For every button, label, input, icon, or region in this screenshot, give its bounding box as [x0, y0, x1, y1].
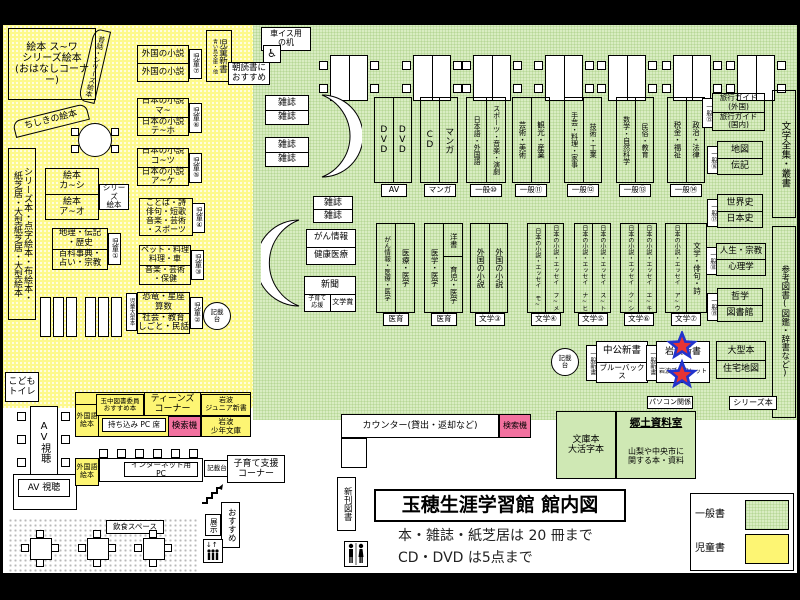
shelf-bar	[40, 297, 51, 337]
folklore-education-label: 民俗・教育	[635, 98, 654, 182]
shelf-japanese-fiction-6: 日本の小説・エッセイ ク~シ 日本の小説・エッセイ エ~キ	[620, 223, 657, 313]
school-recommended-shelf: 玉中図書委員 おすすめ本	[96, 394, 144, 416]
medical-2-right: 洋書 育児・医学	[443, 224, 462, 312]
foreign-novel-label: 外国の小説	[138, 63, 188, 81]
chair	[21, 544, 29, 552]
psychology-label: 心理学	[717, 259, 765, 275]
chair	[61, 458, 70, 467]
chair	[662, 84, 671, 93]
chair	[513, 61, 522, 70]
ehon-ka-shi: 絵本 カ~シ	[46, 169, 98, 194]
chair	[662, 61, 671, 70]
chair	[71, 145, 79, 153]
society-label: 社会・教育 しごと・民話	[138, 313, 189, 334]
shelf-bar	[111, 297, 122, 337]
shelf-bar	[53, 297, 64, 337]
chair	[93, 559, 101, 567]
chair	[585, 84, 594, 93]
novel-a-ke-label: 日本の小説 ア~ケ	[138, 167, 188, 187]
biography-label: 伝記	[718, 158, 762, 175]
tag-ippan-14: 一般⑭	[670, 184, 702, 197]
local-materials-title: 郷土資料室	[617, 412, 695, 436]
novel-ma-label: 日本の小説 マ~	[138, 98, 188, 117]
chair	[402, 84, 411, 93]
tag-ippan-15: 一般⑮	[702, 98, 713, 128]
japanese-novel-shelf-ko: 日本の小説 コ~ツ 日本の小説 ア~ケ	[137, 148, 189, 186]
counter: カウンター(貸出・返却など)	[341, 414, 499, 438]
library-science-label: 図書館	[718, 305, 762, 322]
foreign-novel-label: 外国の小説	[138, 46, 188, 63]
travel-guide-shelf: 旅行ガイド (外国) 旅行ガイド (国内)	[712, 93, 765, 131]
encyclopedia-label: 百科事典・ 占い・宗教	[53, 249, 107, 270]
tag-bungaku-6: 文学⑥	[624, 313, 654, 326]
curved-shelf	[320, 93, 362, 179]
jp-essay-e-ki-label: 日本の小説・エッセイ エ~キ	[638, 224, 656, 312]
tag-bungaku-3: 文学③	[475, 313, 505, 326]
cd-label: CD	[421, 98, 439, 182]
newspaper-label: 新聞	[305, 277, 355, 294]
large-book-shelf: 大型本 住宅地図	[716, 341, 766, 379]
reference-books-strip: 参考図書(図鑑・辞書など)	[772, 226, 796, 418]
chair	[597, 84, 606, 93]
chair	[111, 128, 119, 136]
tag-ippan-17: 一般⑰	[707, 199, 718, 227]
chair	[777, 61, 786, 70]
literature-haiku-label: 文学・俳句・詩	[686, 224, 707, 312]
tag-ippan-18: 一般⑱	[706, 247, 717, 275]
childcare-medical-label: 育児・医学	[444, 257, 462, 312]
tag-jidou-1: 児童①	[108, 233, 121, 265]
tag-bungaku-7: 文学⑦	[671, 313, 701, 326]
residential-map-label: 住宅地図	[717, 360, 765, 379]
tag-jidou-7: 児童⑦	[189, 49, 202, 79]
tag-pasokon: パソコン関係	[647, 396, 693, 409]
shelf-bar	[98, 297, 109, 337]
jp-essay-a-u-label: 日本の小説・エッセイ ア~ウ	[666, 224, 686, 312]
chair	[93, 530, 101, 538]
magazine-label: 雑誌	[314, 209, 352, 222]
shelf-dvd: DVD DVD	[374, 97, 412, 183]
foreign-novel-shelf: 外国の小説 外国の小説	[137, 45, 189, 82]
chair	[153, 449, 162, 458]
new-books-shelf: 新刊図書	[337, 477, 356, 531]
chair	[713, 84, 722, 93]
shelf-medical-2: 医学・医学 洋書 育児・医学	[424, 223, 463, 313]
magazine-label: 雑誌	[266, 110, 308, 125]
travel-guide-domestic-label: 旅行ガイド (国内)	[713, 112, 764, 131]
chair	[453, 61, 462, 70]
tag-jidou-3: 児童③	[191, 250, 204, 280]
foreign-novel-label: 外国の小説	[489, 224, 508, 312]
chair	[726, 84, 735, 93]
reading-table	[462, 55, 522, 101]
chair	[61, 435, 70, 444]
chair	[319, 61, 328, 70]
philosophy-label: 哲学	[718, 289, 762, 305]
chair	[71, 128, 79, 136]
foreign-language-picture-books: 外国語 絵本	[75, 458, 99, 486]
chair	[453, 84, 462, 93]
jp-essay-na-hi-label: 日本の小説・エッセイ ナ~ヒ	[575, 224, 592, 312]
chair	[61, 412, 70, 421]
table	[608, 55, 646, 101]
toilet-icon	[344, 541, 368, 567]
literature-collection-strip: 文学全集・叢書	[772, 90, 796, 218]
chair	[111, 145, 119, 153]
internet-pc-label: インターネット用 PC	[124, 462, 198, 477]
map-label: 地図	[718, 142, 762, 158]
legend-general-label: 一般書	[695, 509, 725, 520]
chair	[713, 61, 722, 70]
medical-label: 医療・医学	[395, 224, 414, 312]
manga-label: マンガ	[439, 98, 458, 182]
search-terminal: 検索機	[168, 416, 201, 437]
dining-table	[30, 538, 52, 560]
chair	[149, 530, 157, 538]
local-materials-desc: 山梨や中央市に 関する本・資料	[617, 436, 695, 478]
chair	[585, 61, 594, 70]
jp-essay-ku-shi-label: 日本の小説・エッセイ ク~シ	[621, 224, 638, 312]
chair	[164, 544, 172, 552]
philosophy-shelf: 哲学 図書館	[717, 288, 763, 322]
legend-general-swatch	[745, 500, 789, 530]
morning-reading-shelf: 朝読書に おすすめ	[228, 62, 270, 85]
health-care-label: 健康医療	[307, 247, 355, 265]
series-braille-kamishibai-shelf: シリーズ本・点字絵本・布絵本・ 紙芝居・大型紙芝居・大型絵本	[8, 148, 36, 320]
elevator-icon: ↓↑	[203, 539, 223, 563]
newspaper-sub: 子育て 応援 文学賞	[305, 294, 355, 312]
tag-manga: マンガ	[424, 184, 456, 197]
jp-essay-mo-label: 日本の小説・エッセイ モ~	[528, 224, 545, 312]
chair	[108, 544, 116, 552]
tag-jidou-4: 児童④	[192, 203, 205, 233]
world-history-label: 世界史	[718, 195, 762, 211]
shelf-bar	[85, 297, 96, 337]
kotoba-shelf: ことば・詩 俳句・短歌 音楽・芸術 ・スポーツ	[139, 198, 193, 236]
pet-label: ペット・料理 料理・車	[140, 246, 190, 265]
legend-children-label: 児童書	[695, 543, 725, 554]
legend-children-swatch	[745, 534, 789, 564]
recommended-display-shelf: おすすめ	[221, 502, 240, 548]
legend: 一般書 児童書	[690, 493, 794, 571]
tag-bungaku-5: 文学⑤	[578, 313, 608, 326]
art-label: 芸術・美術	[513, 98, 531, 182]
table	[673, 55, 711, 101]
chair	[36, 530, 44, 538]
tag-ippan-13: 一般⑬	[619, 184, 651, 197]
technology-label: 技術・工業	[583, 98, 602, 182]
tag-ippan-11: 一般⑪	[515, 184, 547, 197]
reading-table	[597, 55, 657, 101]
writing-desk-circle: 記載 台	[551, 348, 579, 376]
japanese-novel-shelf-ma: 日本の小説 マ~ 日本の小説 テ~ホ	[137, 98, 189, 136]
table	[413, 55, 451, 101]
floor-map-title: 玉穂生涯学習館 館内図	[374, 489, 626, 522]
legend-row-children: 児童書	[695, 534, 789, 564]
chuko-shinsho-label: 中公新書	[597, 342, 647, 362]
kosodate-ouen-label: 子育て 応援	[305, 295, 331, 312]
chair	[189, 449, 198, 458]
japanese-foreign-language-label: 日本語・外国語	[467, 98, 486, 182]
tourism-label: 観光・産業	[531, 98, 550, 182]
wheelchair-icon: ♿	[263, 45, 281, 63]
tax-welfare-label: 税金・福祉	[668, 98, 686, 182]
magazine-label: 雑誌	[314, 197, 352, 209]
shelf-cd-manga: CD マンガ	[420, 97, 458, 183]
tag-series-hon: シリーズ本	[729, 396, 777, 410]
novel-ko-tsu-label: 日本の小説 コ~ツ	[138, 148, 188, 167]
shelf-japanese-fiction-4: 日本の小説・エッセイ モ~ 日本の小説・エッセイ フ~メ	[527, 223, 564, 313]
kids-toilet: こども トイレ	[5, 372, 39, 402]
dinosaur-society-shelf: 恐竜・星座 算数 社会・教育 しごと・民話	[137, 292, 190, 334]
travel-guide-foreign-label: 旅行ガイド (外国)	[713, 94, 764, 112]
table	[473, 55, 511, 101]
chair	[135, 449, 144, 458]
ehon-a-o: 絵本 ア~オ	[46, 194, 98, 220]
math-science-label: 数学・自然科学	[617, 98, 635, 182]
tag-ippan-16: 一般⑯	[707, 146, 718, 174]
chair	[648, 61, 657, 70]
chair	[319, 84, 328, 93]
western-books-label: 洋書	[444, 224, 462, 257]
writing-desk-circle: 記載 台	[203, 302, 231, 330]
tag-ippan-shinsho: 一般新書	[646, 345, 657, 381]
series-ehon-tag: シリーズ 絵本	[99, 184, 129, 210]
music-health-label: 音楽・芸術 ・保健	[140, 265, 190, 285]
geography-label: 地理・伝記 ・歴史	[53, 229, 107, 249]
tag-ippan-shinsho: 一般新書	[586, 345, 597, 381]
chair	[534, 84, 543, 93]
shelf-bar	[66, 297, 77, 337]
chair	[370, 61, 379, 70]
search-terminal: 検索機	[499, 414, 531, 438]
chair	[99, 449, 108, 458]
table	[545, 55, 583, 101]
chair	[534, 61, 543, 70]
iwanami-junior-shinsho: 岩波 ジュニア新書	[201, 394, 251, 416]
tag-ippan-12: 一般⑫	[567, 184, 599, 197]
tag-iiku: 医育	[383, 313, 409, 326]
chair	[78, 544, 86, 552]
tag-bungaku-4: 文学④	[531, 313, 561, 326]
chair	[17, 412, 26, 421]
map-canvas: 絵本 ス~ワ シリーズ絵本 (おはなしコーナー) 昔話・シリーズ絵本 ちしきの絵…	[3, 25, 797, 573]
shelf-foreign-fiction: 外国の小説 外国の小説	[470, 223, 508, 313]
bluebacks-label: ブルーバックス	[597, 362, 647, 383]
magazine-shelf: 雑誌 雑誌	[313, 196, 353, 223]
magazine-label: 雑誌	[266, 138, 308, 152]
novel-te-ho-label: 日本の小説 テ~ホ	[138, 117, 188, 137]
sports-music-drama-label: スポーツ・音楽・演劇	[486, 98, 506, 182]
shelf-medical-1: がん情報・医療・医学 医療・医学	[376, 223, 415, 313]
geography-encyclopedia-shelf: 地理・伝記 ・歴史 百科事典・ 占い・宗教	[52, 228, 108, 270]
bungakusho-label: 文学賞	[331, 299, 356, 307]
shelf-art-tourism: 芸術・美術 観光・産業	[512, 97, 550, 183]
chair	[36, 559, 44, 567]
shelf-japanese-fiction-5: 日本の小説・エッセイ ナ~ヒ 日本の小説・エッセイ ス~ト	[574, 223, 611, 313]
chair	[51, 544, 59, 552]
display-label: 展示	[205, 514, 221, 536]
counter-leg	[341, 438, 367, 468]
jp-essay-su-to-label: 日本の小説・エッセイ ス~ト	[592, 224, 610, 312]
chuko-shinsho-shelf: 中公新書 ブルーバックス	[596, 341, 648, 383]
local-materials-room: 郷土資料室 山梨や中央市に 関する本・資料	[616, 411, 696, 479]
tag-av: AV	[381, 184, 407, 197]
chair	[726, 61, 735, 70]
magazine-shelf: 雑誌 雑誌	[265, 95, 309, 125]
curved-shelf	[261, 218, 301, 308]
reading-table	[534, 55, 594, 101]
handicraft-label: 手芸・料理・家事	[565, 98, 583, 182]
map-biography-shelf: 地図 伝記	[717, 141, 763, 175]
cd-dvd-limit-note: CD・DVD は5点まで	[398, 547, 533, 567]
tag-ippan-19: 一般⑲	[707, 293, 718, 321]
av-viewing-booth-label: AV 視聴	[18, 479, 70, 497]
foreign-novel-label: 外国の小説	[471, 224, 489, 312]
dining-table	[87, 538, 109, 560]
loan-limit-note: 本・雑誌・紙芝居は 20 冊まで	[398, 525, 593, 545]
life-religion-label: 人生・宗教	[717, 244, 765, 259]
childcare-support-corner: 子育て支援 コーナー	[227, 455, 285, 483]
cancer-medical-label: がん情報・医療・医学	[377, 224, 395, 312]
dining-table	[143, 538, 165, 560]
chair	[134, 544, 142, 552]
chair	[462, 61, 471, 70]
chair	[171, 449, 180, 458]
teens-corner-label: ティーンズ コーナー	[144, 392, 201, 416]
magazine-label: 雑誌	[266, 152, 308, 167]
chair	[462, 84, 471, 93]
round-table	[78, 123, 112, 157]
large-book-label: 大型本	[717, 342, 765, 360]
chair	[648, 84, 657, 93]
tag-jidou-ogata: 児童大型本	[126, 293, 137, 331]
svg-text:↓↑: ↓↑	[206, 541, 218, 549]
tag-ippan-10: 一般⑩	[470, 184, 502, 197]
star-sticker	[664, 331, 700, 389]
magazine-shelf: 雑誌 雑誌	[265, 137, 309, 167]
tag-jidou-6: 児童⑥	[189, 103, 202, 133]
newspaper-shelf: 新聞 子育て 応援 文学賞	[304, 276, 356, 312]
chair	[117, 449, 126, 458]
dinosaur-label: 恐竜・星座 算数	[138, 293, 189, 313]
chair	[513, 84, 522, 93]
jp-essay-fu-me-label: 日本の小説・エッセイ フ~メ	[545, 224, 563, 312]
legend-row-general: 一般書	[695, 500, 789, 530]
shelf-japanese-fiction-7: 日本の小説・エッセイ ア~ウ 文学・俳句・詩	[665, 223, 707, 313]
cancer-info-label: がん情報	[307, 230, 355, 247]
shelf-math-folklore: 数学・自然科学 民俗・教育	[616, 97, 654, 183]
life-religion-shelf: 人生・宗教 心理学	[716, 243, 766, 276]
chair	[149, 559, 157, 567]
shelf-tax-politics: 税金・福祉 政治・法律	[667, 97, 705, 183]
japan-history-label: 日本史	[718, 211, 762, 228]
iwanami-shonen-bunko: 岩波 少年文庫	[201, 416, 251, 437]
ehon-shelf: 絵本 カ~シ 絵本 ア~オ	[45, 168, 99, 220]
chair	[402, 61, 411, 70]
tag-iiku: 医育	[431, 313, 457, 326]
chair	[370, 84, 379, 93]
pet-cooking-shelf: ペット・料理 料理・車 音楽・芸術 ・保健	[139, 245, 191, 285]
library-floor-map: 絵本 ス~ワ シリーズ絵本 (おはなしコーナー) 昔話・シリーズ絵本 ちしきの絵…	[0, 0, 800, 600]
cancer-health-info-shelf: がん情報 健康医療	[306, 229, 356, 265]
av-viewing-table: AV視聴	[30, 406, 58, 478]
history-shelf: 世界史 日本史	[717, 194, 763, 228]
chair	[17, 458, 26, 467]
tag-jidou-2: 児童②	[190, 297, 203, 329]
dvd-label: DVD	[393, 98, 412, 182]
jidou-shinsho-label: 児童新書	[217, 39, 227, 73]
shelf-language-sports: 日本語・外国語 スポーツ・音楽・演劇	[466, 97, 506, 183]
tag-jidou-5: 児童⑤	[189, 153, 202, 183]
chair	[17, 435, 26, 444]
byod-pc-seat: 持ち込み PC 席	[102, 418, 166, 432]
magazine-label: 雑誌	[266, 96, 308, 110]
medicine-label: 医学・医学	[425, 224, 443, 312]
chair	[597, 61, 606, 70]
reading-table	[402, 55, 462, 101]
shelf-craft-tech: 手芸・料理・家事 技術・工業	[564, 97, 602, 183]
dvd-label: DVD	[375, 98, 393, 182]
bunko-large-print-room: 文庫本 大活字本	[556, 411, 616, 479]
